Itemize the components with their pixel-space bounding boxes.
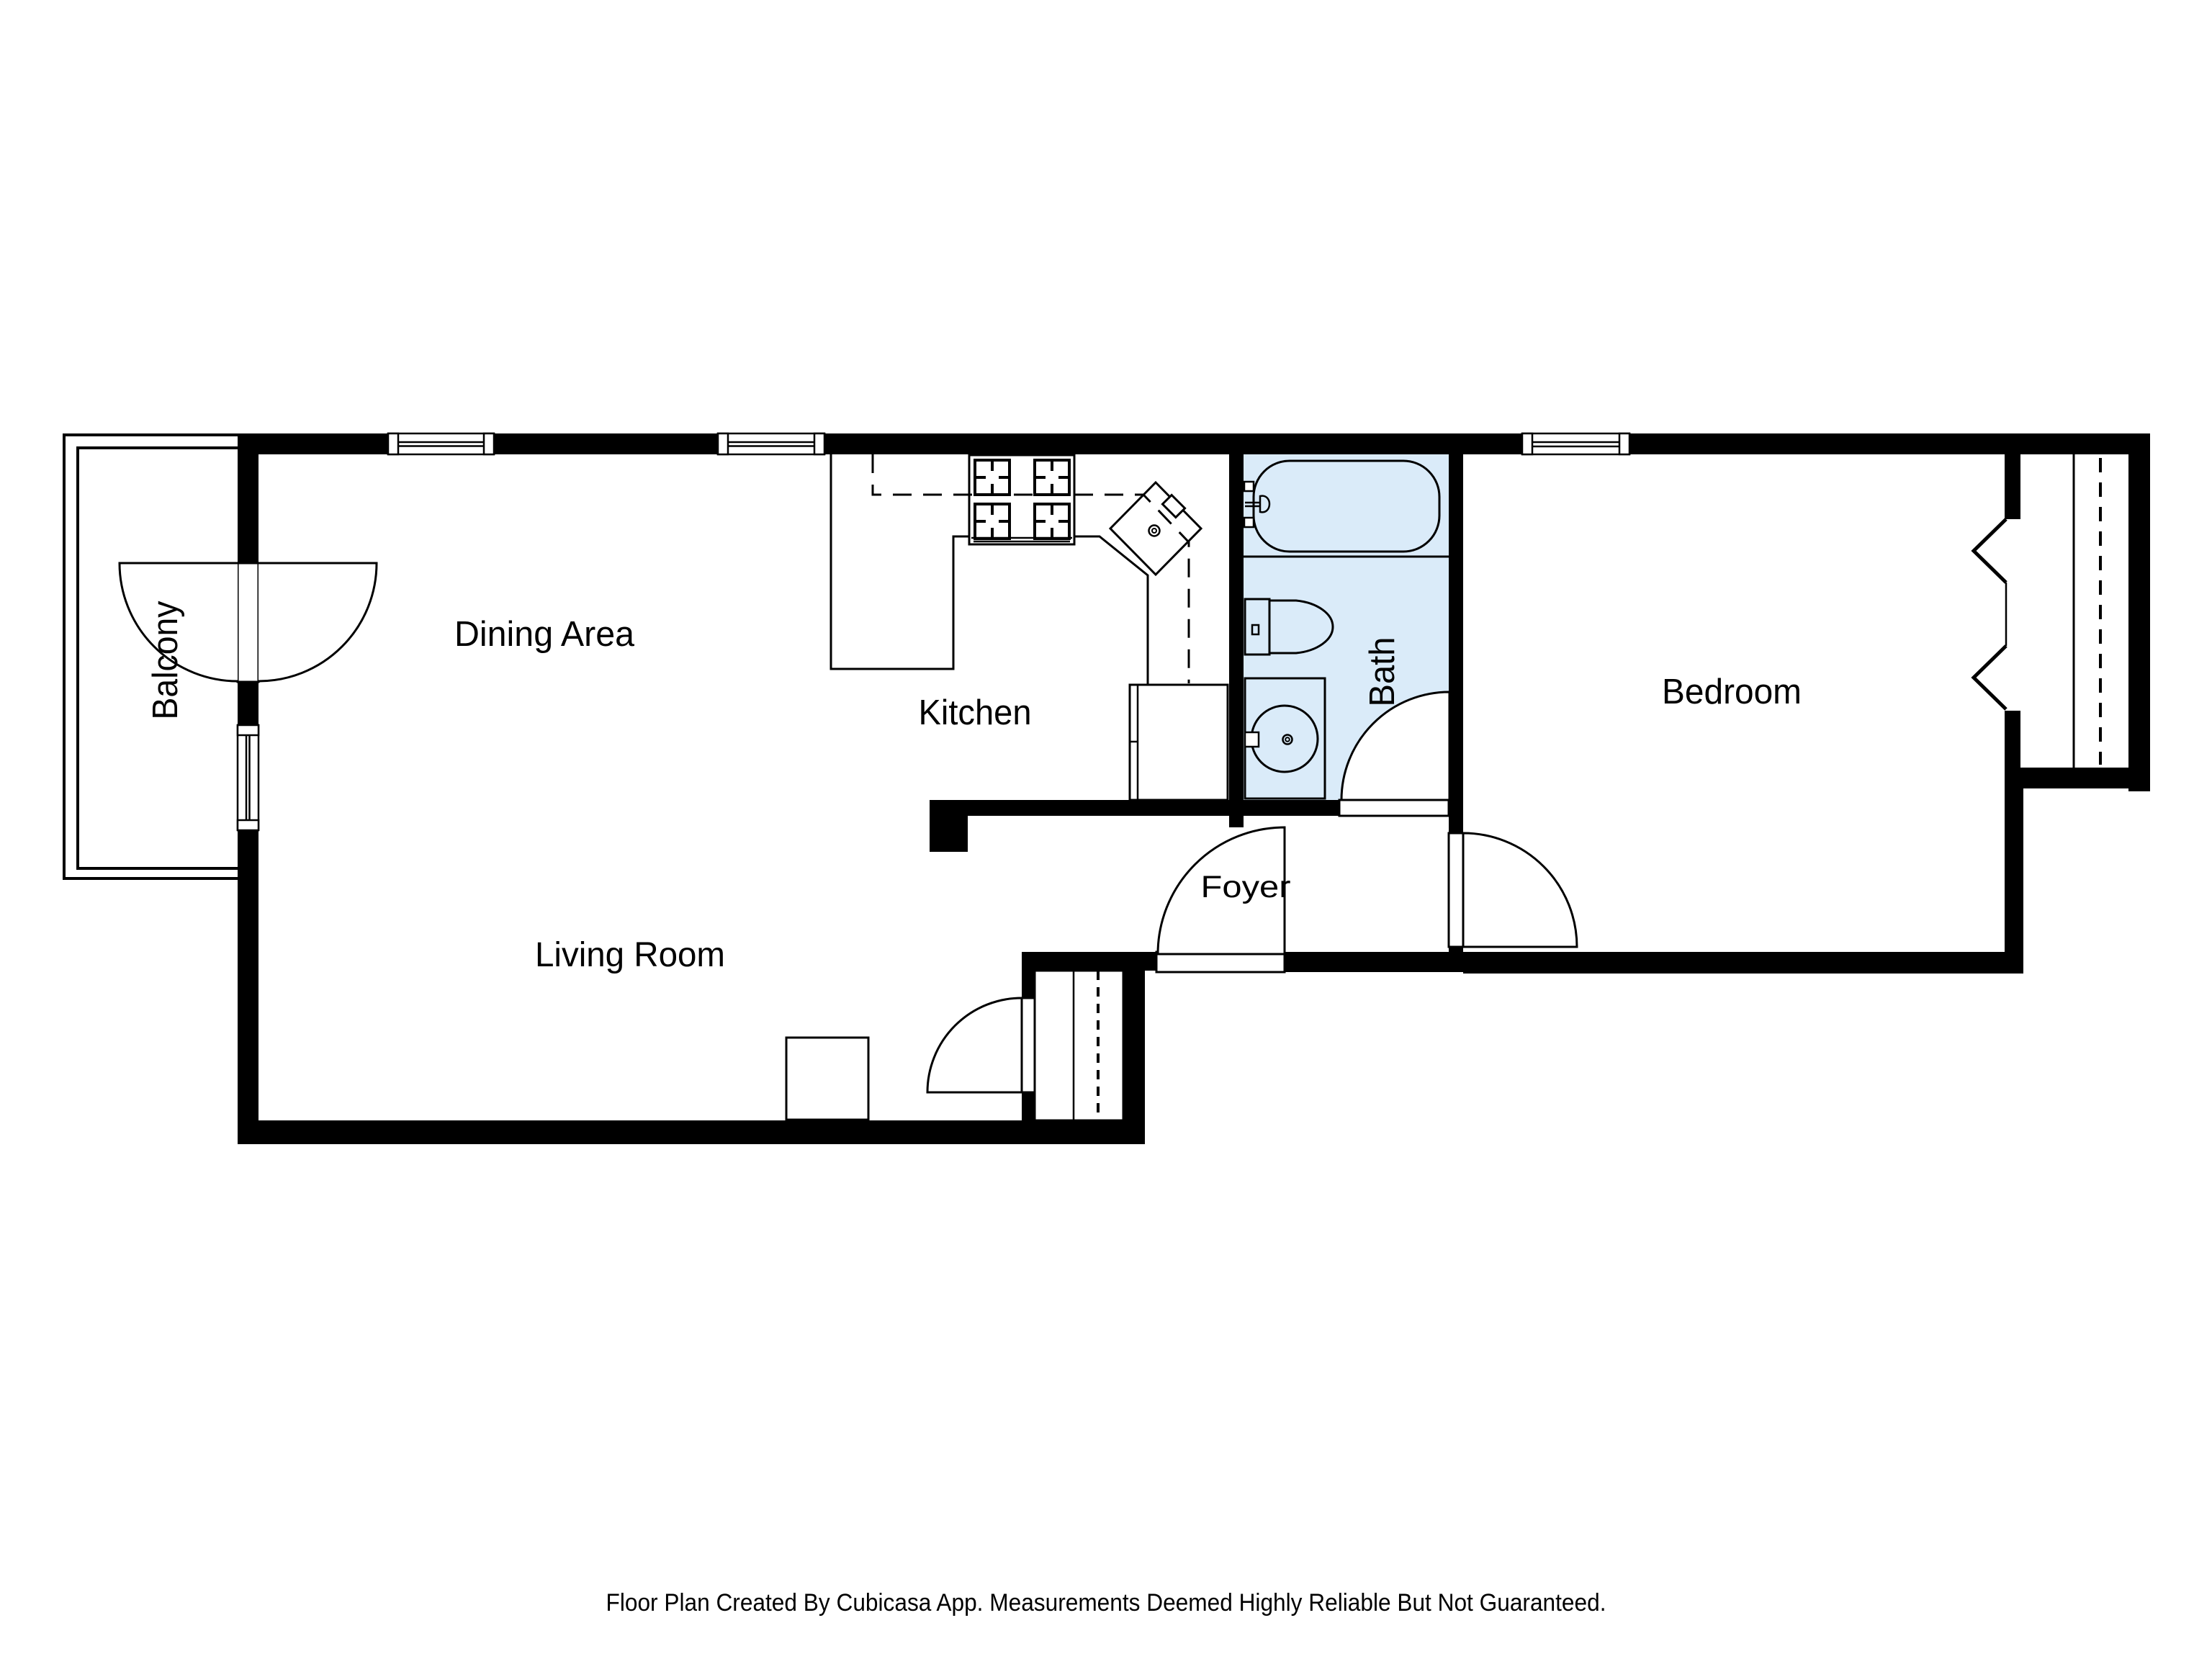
- svg-text:Foyer: Foyer: [1201, 870, 1291, 904]
- svg-text:Balcony: Balcony: [146, 601, 185, 719]
- svg-text:Dining Area: Dining Area: [454, 615, 635, 654]
- svg-text:Living Room: Living Room: [535, 936, 725, 974]
- svg-text:Bath: Bath: [1363, 637, 1402, 707]
- svg-text:Floor Plan Created By Cubicasa: Floor Plan Created By Cubicasa App. Meas…: [606, 1589, 1606, 1617]
- svg-text:Kitchen: Kitchen: [919, 693, 1032, 732]
- svg-text:Bedroom: Bedroom: [1662, 673, 1802, 711]
